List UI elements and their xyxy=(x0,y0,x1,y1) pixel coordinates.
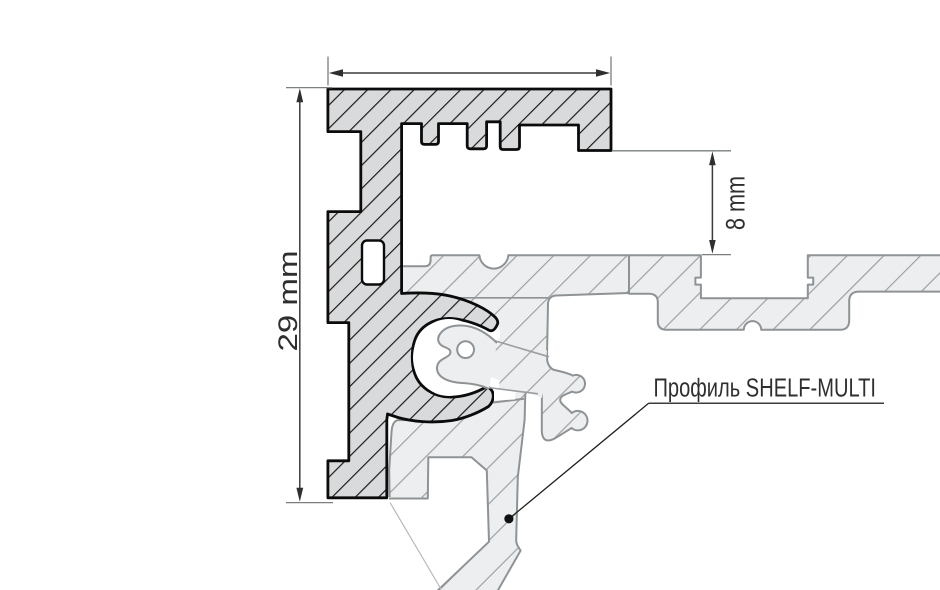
svg-text:29 mm: 29 mm xyxy=(273,251,303,352)
svg-text:Профиль SHELF-MULTI: Профиль SHELF-MULTI xyxy=(654,375,877,403)
svg-text:8 mm: 8 mm xyxy=(721,176,751,230)
